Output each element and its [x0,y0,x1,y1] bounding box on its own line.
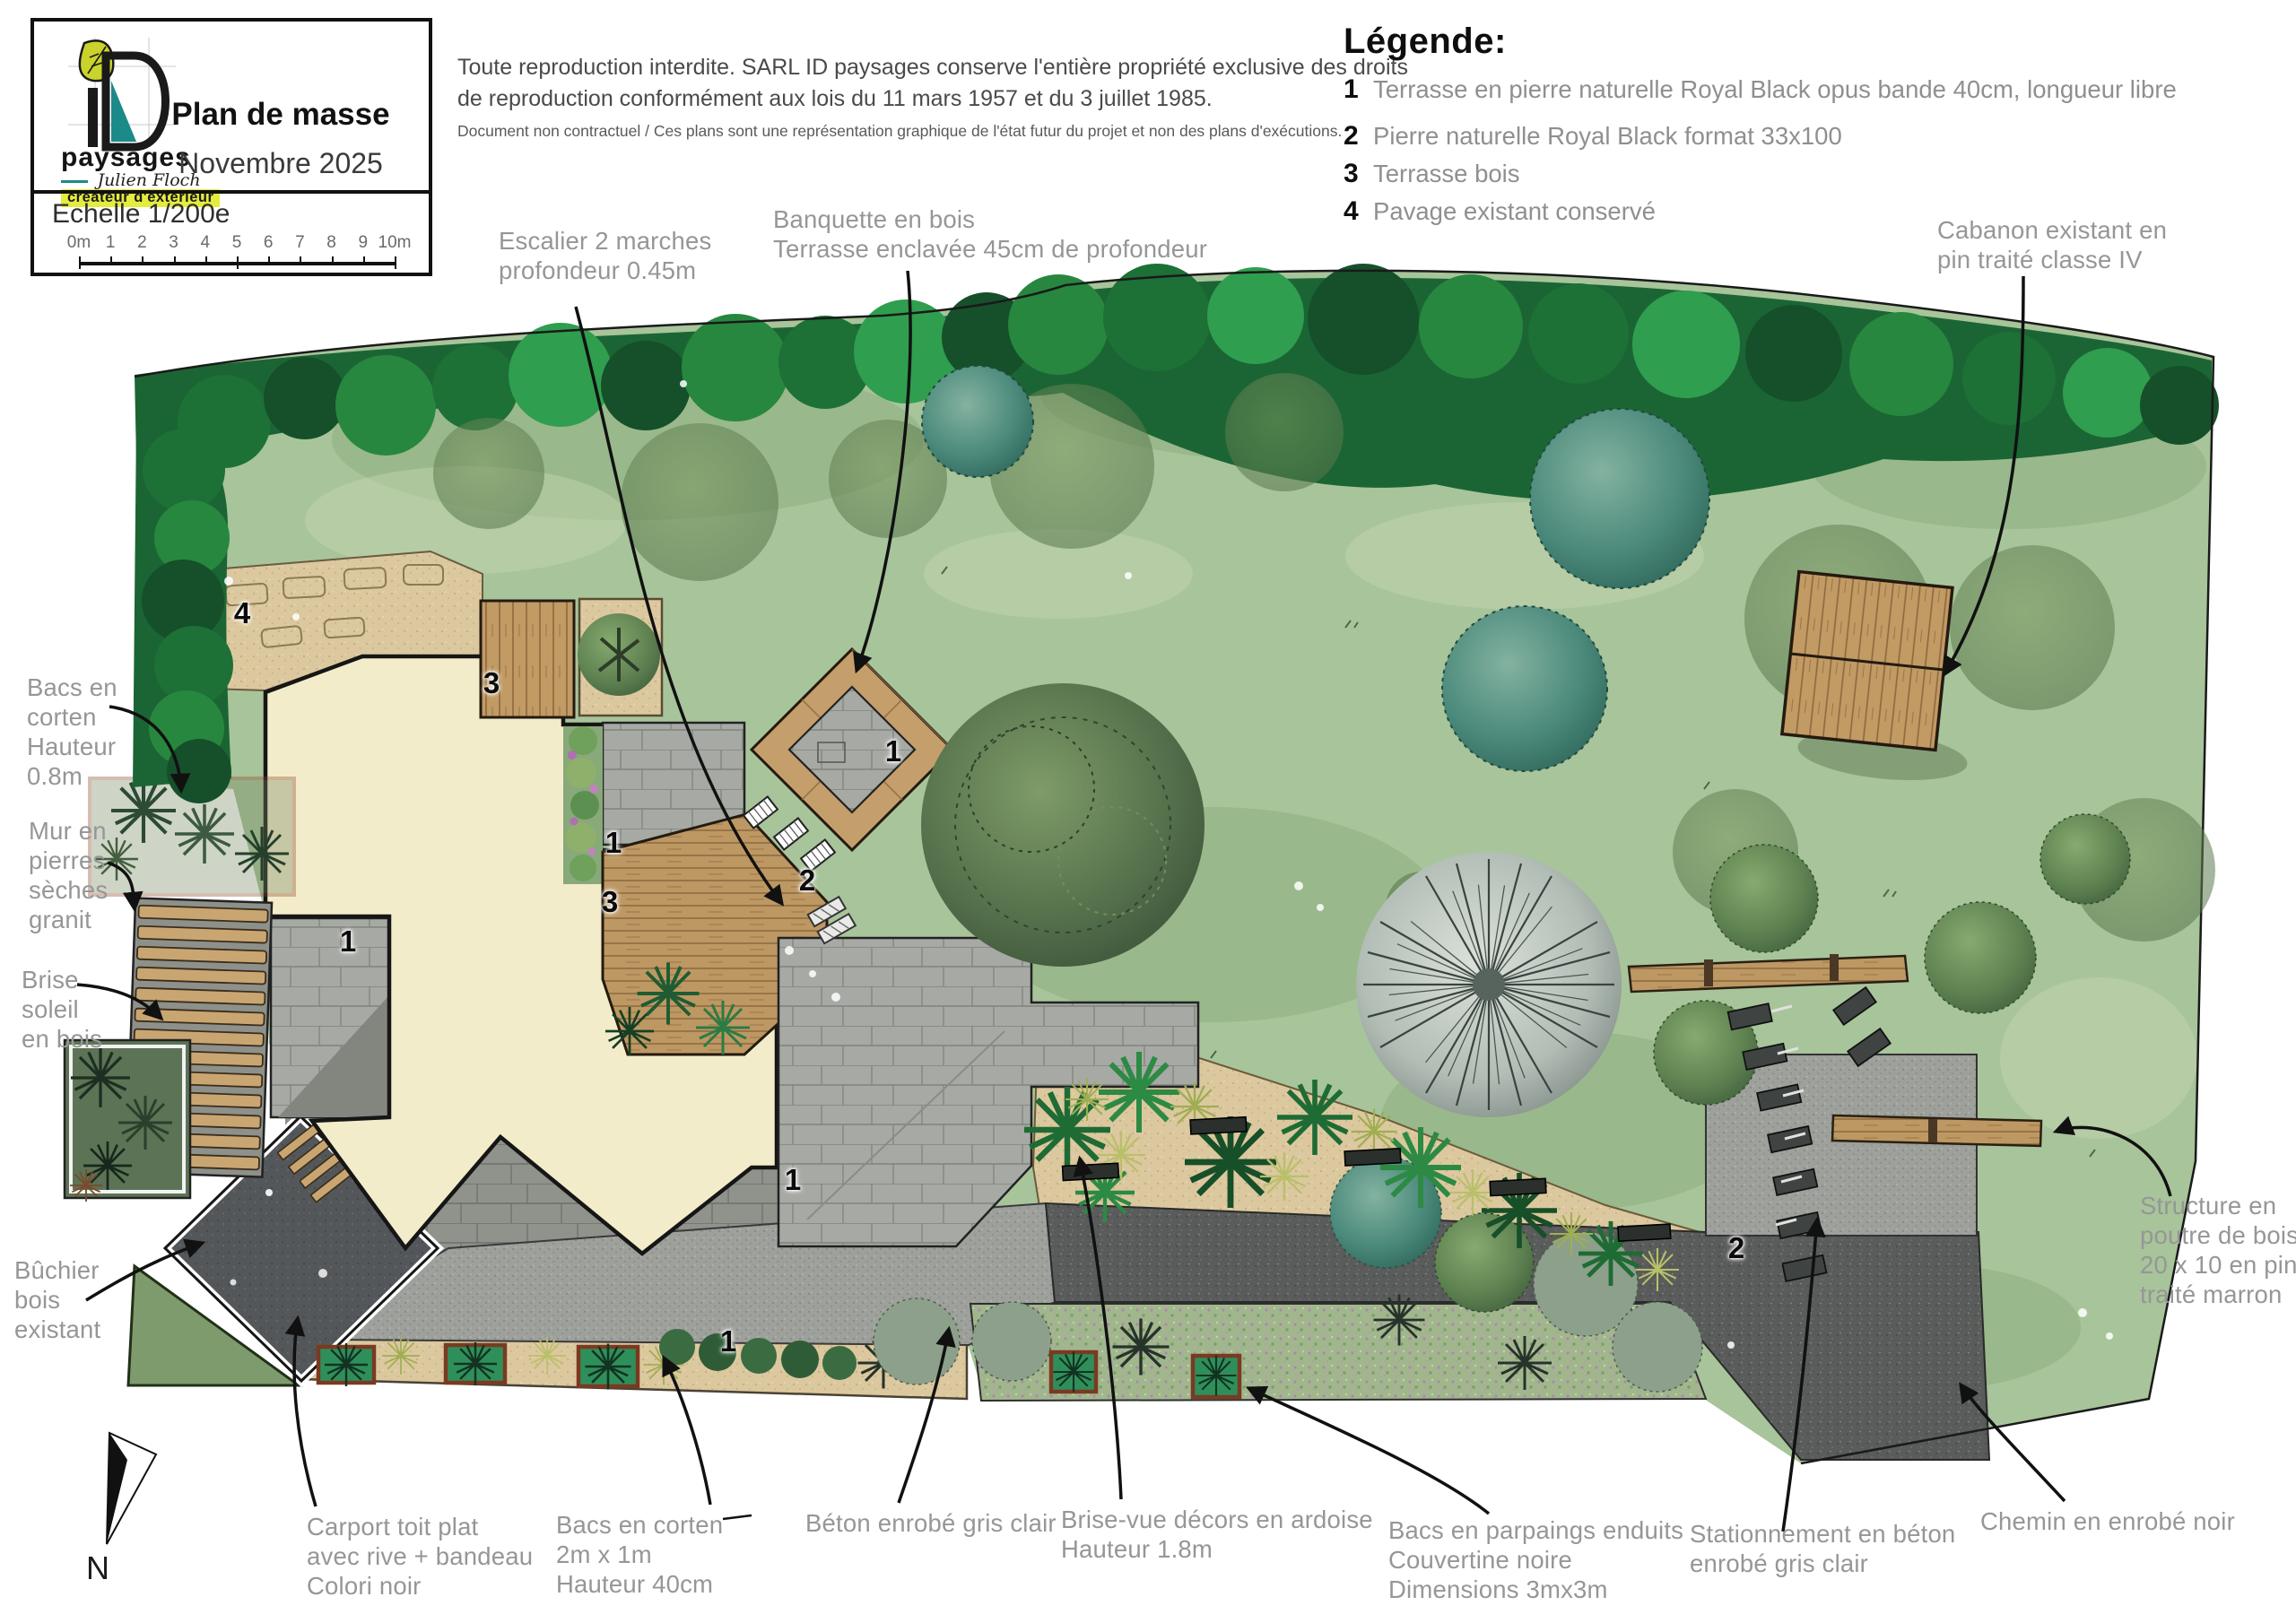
annotation-bacs-corten-bas: Bacs en corten2m x 1mHauteur 40cm [556,1510,723,1599]
copyright-note: Document non contractuel / Ces plans son… [457,122,1408,141]
plan-de-masse-page: paysages Julien Floch créateur d'extérie… [0,0,2296,1623]
scale-tick: 0m [67,233,91,253]
annotation-line: profondeur 0.45m [499,256,711,285]
annotation-line: sèches [29,875,108,905]
plan-marker-1: 1 [785,1163,801,1197]
legend-item-label: Pierre naturelle Royal Black format 33x1… [1373,122,1842,151]
legend-item-num: 2 [1344,121,1360,152]
annotation-beton-enrobe: Béton enrobé gris clair [805,1508,1057,1538]
annotation-line: Bacs en [27,673,117,702]
scale-bar [79,262,395,265]
plan-marker-2: 2 [799,864,815,898]
annotation-chemin: Chemin en enrobé noir [1980,1506,2235,1536]
plan-marker-1: 1 [720,1324,736,1358]
annotation-line: avec rive + bandeau [307,1541,533,1571]
annotation-structure-poutre: Structure enpoutre de bois20 x 10 en pin… [2140,1191,2296,1309]
annotation-buchier: Bûchierboisexistant [14,1255,100,1344]
annotation-brise-vue: Brise-vue décors en ardoiseHauteur 1.8m [1061,1505,1373,1564]
sand-square-tree [578,599,662,716]
annotation-line: Terrasse enclavée 45cm de profondeur [773,234,1207,264]
plan-marker-1: 1 [605,826,622,860]
annotation-line: Carport toit plat [307,1512,533,1541]
terrasse-pierre-ouest [271,918,389,1117]
patio-plante [65,1040,190,1202]
legend-items: 1Terrasse en pierre naturelle Royal Blac… [1344,74,2177,227]
annotation-line: Colori noir [307,1571,533,1601]
legend-item-label: Terrasse bois [1373,160,1520,188]
annotation-line: Hauteur [27,732,117,761]
scale-tick: 6 [264,233,274,253]
annotation-line: granit [29,905,108,934]
annotation-line: soleil [22,994,102,1024]
annotation-line: existant [14,1315,100,1344]
annotation-line: pin traité classe IV [1937,245,2167,274]
annotation-line: 2m x 1m [556,1540,723,1569]
legend-item-label: Terrasse en pierre naturelle Royal Black… [1373,75,2177,104]
annotation-line: Béton enrobé gris clair [805,1508,1057,1538]
scale-tick: 10m [378,233,412,253]
scale-label: Echelle 1/200e [52,199,230,230]
annotation-line: Banquette en bois [773,204,1207,234]
annotation-line: Cabanon existant en [1937,215,2167,245]
copyright-block: Toute reproduction interdite. SARL ID pa… [457,52,1408,141]
plan-date: Novembre 2025 [142,147,420,180]
annotation-line: pierres [29,846,108,875]
annotation-bacs-parpaings: Bacs en parpaings enduitsCouvertine noir… [1388,1515,1683,1604]
annotation-line: poutre de bois [2140,1220,2296,1250]
annotation-line: 20 x 10 en pin [2140,1250,2296,1280]
scale-tick: 1 [106,233,116,253]
hedge-left [133,421,233,803]
plan-marker-1: 1 [340,924,356,959]
scale-tick: 9 [359,233,369,253]
annotation-line: Escalier 2 marches [499,226,711,256]
plan-marker-3: 3 [483,666,500,700]
north-arrow-icon [52,1417,169,1547]
scale-tick: 4 [201,233,211,253]
legend-title: Légende: [1344,22,2177,62]
legend-item-label: Pavage existant conservé [1373,197,1656,226]
scale-tick: 8 [326,233,336,253]
copyright-line2: de reproduction conformément aux lois du… [457,83,1408,115]
legend-item-num: 1 [1344,74,1360,105]
annotation-line: bois [14,1285,100,1315]
annotation-carport: Carport toit platavec rive + bandeauColo… [307,1512,533,1601]
scale-tick: 7 [295,233,305,253]
annotation-brise-soleil: Brisesoleilen bois [22,965,102,1054]
planting-strip [563,726,603,884]
annotation-line: Bacs en parpaings enduits [1388,1515,1683,1545]
annotation-line: Couvertine noire [1388,1545,1683,1575]
annotation-line: Brise [22,965,102,994]
scale-tick: 2 [137,233,147,253]
legend-item-3: 3Terrasse bois [1344,159,2177,189]
annotation-line: Bacs en corten [556,1510,723,1540]
annotation-line: Hauteur 1.8m [1061,1534,1373,1564]
annotation-line: corten [27,702,117,732]
scale-ticks: 0m12345678910m [34,233,429,256]
annotation-cabanon: Cabanon existant enpin traité classe IV [1937,215,2167,274]
annotation-escalier: Escalier 2 marchesprofondeur 0.45m [499,226,711,285]
plan-marker-1: 1 [885,734,901,768]
plan-marker-3: 3 [602,885,618,919]
copyright-line1: Toute reproduction interdite. SARL ID pa… [457,52,1408,83]
annotation-line: Dimensions 3mx3m [1388,1575,1683,1604]
large-tree [921,683,1205,967]
annotation-stationnement: Stationnement en bétonenrobé gris clair [1690,1519,1955,1578]
scale-tick: 3 [169,233,178,253]
plan-marker-4: 4 [234,596,250,630]
annotation-banquette: Banquette en boisTerrasse enclavée 45cm … [773,204,1207,264]
annotation-line: Brise-vue décors en ardoise [1061,1505,1373,1534]
annotation-line: Structure en [2140,1191,2296,1220]
annotation-line: Chemin en enrobé noir [1980,1506,2235,1536]
silver-tree [1356,852,1622,1117]
annotation-line: Stationnement en béton [1690,1519,1955,1549]
annotation-line: traité marron [2140,1280,2296,1309]
legend-item-1: 1Terrasse en pierre naturelle Royal Blac… [1344,74,2177,105]
page-title: Plan de masse [142,97,420,133]
annotation-line: en bois [22,1024,102,1054]
legend-item-num: 4 [1344,196,1360,227]
north-label: N [86,1549,109,1587]
scale-tick: 5 [232,233,242,253]
legend-item-2: 2Pierre naturelle Royal Black format 33x… [1344,121,2177,152]
annotation-line: Bûchier [14,1255,100,1285]
annotation-line: Mur en [29,816,108,846]
title-block: paysages Julien Floch créateur d'extérie… [30,18,432,276]
annotation-bacs-corten-gauche: Bacs encortenHauteur0.8m [27,673,117,791]
annotation-line: Hauteur 40cm [556,1569,723,1599]
plan-marker-2: 2 [1728,1231,1744,1265]
legend-item-num: 3 [1344,159,1360,189]
annotation-line: 0.8m [27,761,117,791]
legend: Légende: 1Terrasse en pierre naturelle R… [1344,22,2177,227]
annotation-mur-pierres: Mur enpierressèchesgranit [29,816,108,934]
annotation-line: enrobé gris clair [1690,1549,1955,1578]
compass: N [52,1417,169,1551]
